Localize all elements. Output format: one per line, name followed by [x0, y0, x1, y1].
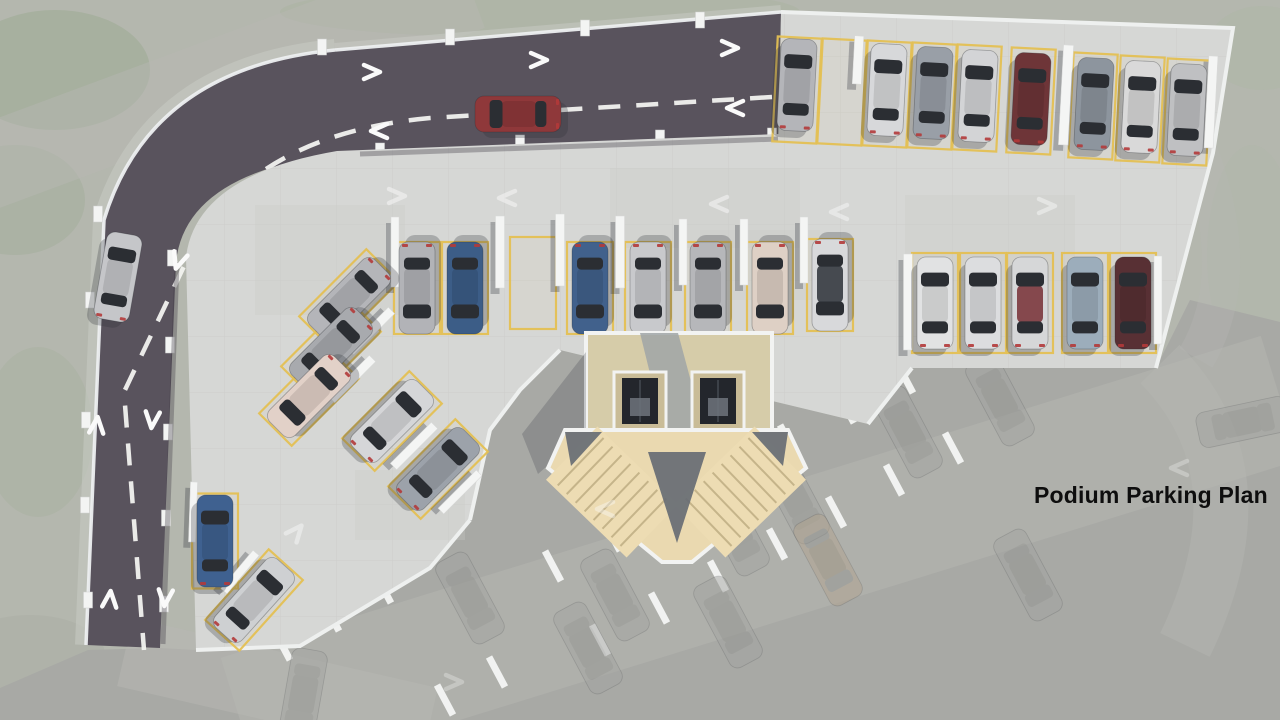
car [812, 232, 854, 331]
podium-parking-plan-rendering: Podium Parking Plan [0, 0, 1280, 720]
curb-post [446, 29, 455, 45]
divider-wall [795, 217, 808, 289]
car [572, 235, 614, 334]
divider-wall [674, 219, 687, 291]
car [1004, 52, 1051, 153]
curb-post [82, 412, 91, 428]
car [191, 495, 233, 594]
car [906, 46, 953, 147]
car [690, 235, 732, 334]
car [475, 96, 568, 138]
curb-post [94, 206, 103, 222]
car [911, 257, 953, 356]
divider-wall [899, 254, 913, 356]
car [447, 235, 489, 334]
plan-title: Podium Parking Plan [1034, 482, 1268, 509]
car [399, 235, 441, 334]
curb-post [581, 20, 590, 36]
elevator [692, 372, 744, 430]
car [1109, 257, 1151, 356]
car [860, 43, 907, 144]
car [1061, 257, 1103, 356]
divider-wall [847, 36, 864, 91]
curb-post [84, 592, 93, 608]
curb-post [318, 39, 327, 55]
car [1067, 57, 1114, 158]
curb-post [81, 497, 90, 513]
car [770, 38, 817, 139]
divider-wall [491, 216, 505, 294]
divider-wall [735, 219, 748, 291]
car [959, 257, 1001, 356]
car [1006, 257, 1048, 356]
car [951, 49, 998, 150]
car [1114, 60, 1161, 161]
site-plan-canvas [0, 0, 1280, 720]
curb-post [696, 12, 705, 28]
car [1160, 63, 1207, 164]
car [630, 235, 672, 334]
divider-wall [551, 214, 565, 292]
elevator [614, 372, 666, 430]
parking-stall [510, 237, 556, 329]
car [752, 235, 794, 334]
